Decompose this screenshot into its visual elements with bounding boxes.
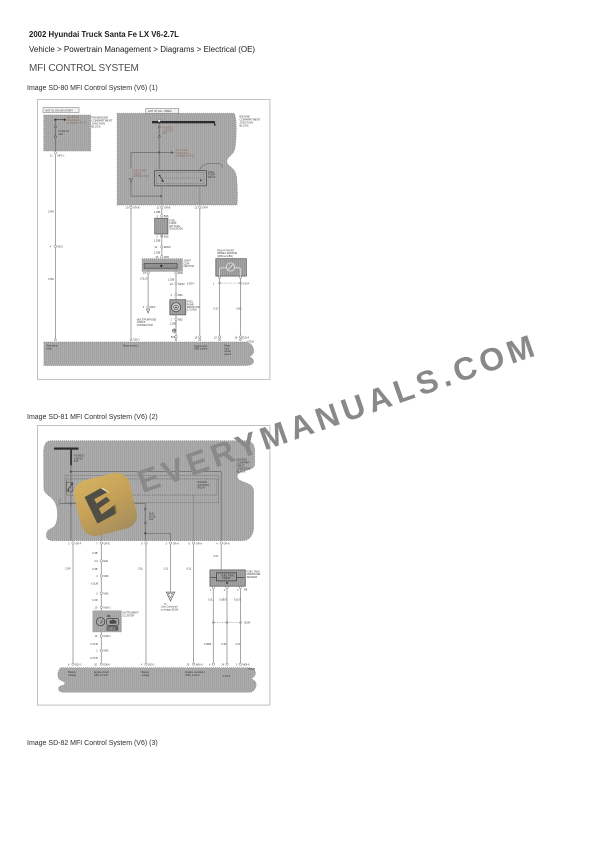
svg-text:0.3B/B: 0.3B/B — [204, 643, 212, 646]
svg-text:1.25B: 1.25B — [154, 211, 161, 214]
svg-text:on Image SD-84: on Image SD-84 — [161, 608, 179, 611]
svg-text:0.5G/Y: 0.5G/Y — [187, 282, 195, 285]
svg-text:S7538: S7538 — [248, 668, 256, 671]
svg-text:0.5G: 0.5G — [236, 308, 241, 311]
svg-text:0.5Y: 0.5Y — [214, 308, 219, 311]
svg-text:0.5W: 0.5W — [48, 211, 54, 214]
svg-text:1.25B: 1.25B — [170, 323, 177, 326]
svg-text:50A: 50A — [74, 460, 79, 463]
svg-text:M234: M234 — [244, 622, 251, 625]
svg-text:10A: 10A — [149, 518, 154, 521]
svg-text:GR-B: GR-B — [133, 207, 140, 210]
svg-text:MG1: MG1 — [58, 246, 64, 249]
svg-text:RELAY: RELAY — [208, 176, 216, 179]
svg-text:BLOCK: BLOCK — [237, 469, 246, 473]
svg-text:0.3L: 0.3L — [236, 643, 241, 646]
svg-text:E06-6: E06-6 — [104, 664, 111, 667]
svg-text:0.3R: 0.3R — [221, 643, 226, 646]
svg-text:(MIL) control: (MIL) control — [185, 674, 199, 677]
svg-text:0.3L: 0.3L — [187, 567, 192, 570]
svg-text:at Diagram 20-10: at Diagram 20-10 — [67, 122, 87, 125]
svg-text:1.25B: 1.25B — [168, 279, 175, 282]
svg-text:SENSOR: SENSOR — [247, 576, 258, 579]
svg-text:relay: relay — [47, 347, 53, 350]
svg-text:0.3L: 0.3L — [208, 599, 213, 602]
svg-text:E03-4: E03-4 — [242, 336, 249, 339]
svg-text:E03-1: E03-1 — [148, 664, 155, 667]
svg-text:E06M: E06M — [164, 246, 171, 249]
svg-text:PRESS.: PRESS. — [223, 578, 232, 580]
svg-text:2.0R: 2.0R — [65, 567, 70, 570]
svg-text:GR-E: GR-E — [104, 542, 111, 545]
svg-text:FUEL TANK: FUEL TANK — [222, 574, 235, 577]
svg-text:SOLENOID): SOLENOID) — [169, 228, 183, 231]
svg-text:2C: 2C — [170, 283, 173, 286]
svg-text:MF62: MF62 — [178, 283, 185, 286]
svg-text:F.T.P.S: F.T.P.S — [223, 675, 231, 678]
svg-text:HOT AT ALL TIMES: HOT AT ALL TIMES — [148, 109, 172, 113]
svg-text:BLOCK: BLOCK — [240, 124, 249, 128]
svg-text:B62: B62 — [178, 294, 183, 297]
svg-text:0.3L: 0.3L — [163, 567, 168, 570]
svg-text:MF3: MF3 — [150, 306, 156, 309]
svg-text:S7536: S7536 — [247, 341, 255, 344]
svg-text:at Diagram 20-10: at Diagram 20-10 — [176, 155, 196, 158]
svg-text:0.3B: 0.3B — [92, 552, 97, 555]
svg-text:CLUSTER: CLUSTER — [122, 614, 134, 617]
svg-text:ABS control: ABS control — [194, 348, 208, 351]
svg-text:G26-1: G26-1 — [133, 339, 140, 342]
svg-text:GR-A: GR-A — [173, 542, 180, 545]
svg-text:GR-A: GR-A — [223, 542, 230, 545]
svg-text:& COND.: & COND. — [187, 309, 198, 312]
svg-text:0.3L/O: 0.3L/O — [234, 599, 241, 602]
svg-text:GR-B: GR-B — [164, 207, 171, 210]
svg-text:E06: E06 — [104, 560, 109, 563]
svg-text:1.25B: 1.25B — [154, 240, 161, 243]
svg-text:E03-1: E03-1 — [75, 664, 82, 667]
svg-text:(Without ABS): (Without ABS) — [217, 255, 233, 258]
svg-text:4 C: 4 C — [94, 560, 98, 563]
svg-text:GR-F: GR-F — [75, 542, 82, 545]
svg-text:M06: M06 — [104, 592, 109, 595]
svg-text:CONNECTOR: CONNECTOR — [133, 175, 149, 178]
svg-text:0.3Y/B: 0.3Y/B — [90, 657, 98, 660]
svg-text:M18-1: M18-1 — [104, 635, 112, 638]
svg-text:0.5W: 0.5W — [48, 278, 54, 281]
svg-text:MIL: MIL — [107, 614, 112, 618]
svg-text:1.25B: 1.25B — [154, 251, 161, 254]
svg-text:CONNECTOR: CONNECTOR — [137, 324, 153, 327]
svg-text:M06: M06 — [104, 650, 109, 653]
svg-text:M18-1: M18-1 — [104, 606, 112, 609]
svg-text:B16: B16 — [164, 215, 169, 218]
svg-text:M06: M06 — [104, 575, 109, 578]
svg-text:10A: 10A — [58, 132, 63, 136]
svg-text:0.3B: 0.3B — [92, 568, 97, 571]
svg-text:RELAY: RELAY — [197, 487, 205, 490]
svg-text:BLOCK: BLOCK — [92, 125, 101, 129]
svg-text:GR-A: GR-A — [196, 542, 203, 545]
svg-text:speed: speed — [224, 353, 231, 356]
svg-text:GR-F: GR-F — [202, 207, 209, 210]
svg-text:CHECK: CHECK — [107, 629, 116, 631]
svg-text:0.3B/O: 0.3B/O — [219, 599, 227, 602]
svg-text:0.3R: 0.3R — [92, 599, 97, 602]
svg-text:HOT IN ON OR START: HOT IN ON OR START — [45, 108, 73, 112]
svg-text:MF1-L: MF1-L — [57, 155, 65, 158]
svg-text:0.3Y/B: 0.3Y/B — [90, 643, 98, 646]
svg-text:M65: M65 — [178, 272, 183, 275]
svg-text:M06-6: M06-6 — [243, 664, 250, 667]
svg-text:0.3L/G: 0.3L/G — [140, 277, 148, 280]
svg-text:voltage: voltage — [142, 674, 151, 677]
svg-text:B16: B16 — [164, 235, 169, 238]
svg-text:B71: B71 — [171, 336, 176, 339]
svg-text:M06-6: M06-6 — [196, 664, 203, 667]
svg-text:voltage: voltage — [68, 674, 77, 677]
svg-text:30A: 30A — [163, 132, 168, 135]
svg-text:(MIL) control: (MIL) control — [94, 674, 108, 677]
svg-text:0.5L: 0.5L — [213, 555, 218, 558]
svg-text:0.5L: 0.5L — [138, 567, 143, 570]
svg-text:0.3L/B: 0.3L/B — [91, 582, 99, 585]
svg-text:2 E14: 2 E14 — [243, 282, 250, 285]
svg-text:Motor ground: Motor ground — [123, 345, 138, 348]
svg-text:B62: B62 — [178, 318, 183, 321]
svg-text:NECTOR: NECTOR — [184, 265, 195, 268]
